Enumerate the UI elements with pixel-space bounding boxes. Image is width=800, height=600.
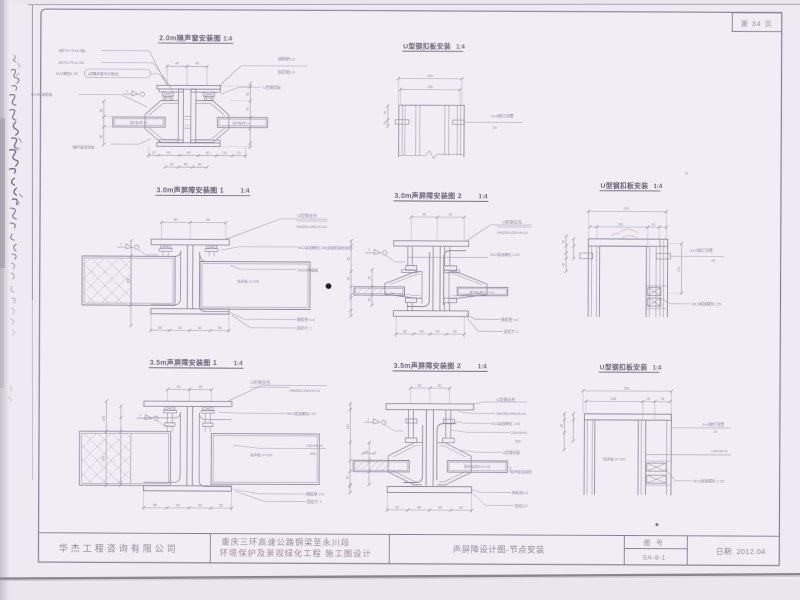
svg-text:M12高强螺栓 1:25: M12高强螺栓 1:25: [693, 478, 724, 483]
svg-text:1:4: 1:4: [478, 193, 488, 200]
svg-text:30: 30: [453, 330, 457, 334]
svg-text:橡胶垫 t=4: 橡胶垫 t=4: [306, 492, 324, 497]
svg-text:25: 25: [560, 424, 564, 428]
svg-text:150: 150: [102, 416, 106, 422]
svg-text:HW250×250×9×14: HW250×250×9×14: [497, 231, 527, 235]
svg-text:吸声板连接图: 吸声板连接图: [510, 469, 532, 474]
svg-text:40: 40: [368, 276, 372, 280]
svg-text:1: 1: [126, 89, 128, 93]
svg-text:HW250×250×9×14: HW250×250×9×14: [496, 412, 526, 416]
svg-text:4根75×75×6.5板: 4根75×75×6.5板: [58, 48, 85, 53]
svg-text:60: 60: [347, 257, 351, 261]
svg-text:500: 500: [515, 439, 521, 443]
svg-text:U型钢扣板安装: U型钢扣板安装: [403, 41, 451, 50]
svg-text:M12高强螺栓1:25: M12高强螺栓1:25: [691, 301, 721, 306]
svg-text:40: 40: [438, 506, 442, 510]
svg-text:40: 40: [448, 213, 452, 217]
svg-text:30: 30: [459, 506, 463, 510]
svg-text:40: 40: [346, 476, 350, 480]
svg-text:30: 30: [395, 505, 399, 509]
svg-text:橡胶垫 t=4: 橡胶垫 t=4: [297, 317, 315, 322]
svg-text:24: 24: [651, 223, 655, 227]
svg-text:U型钢扣板安装: U型钢扣板安装: [600, 362, 648, 371]
svg-text:40: 40: [167, 151, 171, 155]
svg-text:40: 40: [347, 277, 351, 281]
svg-text:隔声窗连接板: 隔声窗连接板: [73, 144, 95, 149]
svg-text:声屏障设计图-节点安装: 声屏障设计图-节点安装: [453, 544, 545, 554]
svg-text:30: 30: [223, 151, 227, 155]
svg-text:吸声板 b=100: 吸声板 b=100: [603, 456, 625, 461]
svg-text:10: 10: [152, 151, 156, 155]
svg-text:4M75×75×6.5M: 4M75×75×6.5M: [58, 61, 84, 65]
svg-text:日期: 2012.04: 日期: 2012.04: [716, 547, 766, 556]
svg-text:橡胶垫t=4: 橡胶垫t=4: [512, 490, 528, 495]
svg-text:40: 40: [438, 384, 442, 388]
svg-text:500: 500: [310, 452, 316, 456]
svg-text:40: 40: [176, 503, 180, 507]
svg-text:20: 20: [713, 430, 717, 434]
svg-text:(或隔声窗半分固定): (或隔声窗半分固定): [88, 71, 119, 76]
svg-text:136: 136: [427, 85, 433, 89]
svg-text:30: 30: [403, 329, 407, 333]
svg-text:HW250×250×9×14: HW250×250×9×14: [290, 389, 320, 393]
svg-text:20: 20: [647, 397, 651, 401]
svg-text:M12高强螺栓1:25: M12高强螺栓1:25: [287, 411, 315, 416]
svg-text:40: 40: [175, 62, 179, 66]
svg-text:115: 115: [346, 424, 350, 429]
svg-text:40: 40: [184, 163, 188, 167]
svg-text:190: 190: [624, 386, 630, 390]
svg-text:40: 40: [195, 62, 199, 66]
svg-text:图 号: 图 号: [644, 539, 665, 547]
svg-text:1: 1: [368, 248, 370, 252]
svg-text:3.5m声屏障安装图 1: 3.5m声屏障安装图 1: [150, 358, 217, 367]
svg-text:50: 50: [173, 218, 177, 222]
svg-text:30: 30: [170, 162, 174, 166]
svg-text:500: 500: [127, 278, 131, 284]
svg-text:M12高强螺栓1:25(或植筋锚栓固定): M12高强螺栓1:25(或植筋锚栓固定): [298, 245, 352, 250]
svg-text:固定窗1:4: 固定窗1:4: [278, 69, 295, 74]
svg-text:40: 40: [198, 503, 202, 507]
svg-text:55: 55: [218, 326, 222, 330]
svg-text:1:4: 1:4: [478, 363, 488, 370]
svg-text:1: 1: [120, 242, 122, 246]
svg-text:136: 136: [611, 397, 617, 401]
svg-text:40: 40: [177, 385, 181, 389]
svg-text:170: 170: [677, 266, 681, 272]
svg-text:第 34 页: 第 34 页: [741, 19, 773, 28]
svg-text:L50×50×5: L50×50×5: [306, 444, 322, 448]
svg-text:橡胶垫 t=4: 橡胶垫 t=4: [501, 317, 519, 322]
svg-text:固定片 2: 固定片 2: [307, 499, 322, 504]
svg-text:40: 40: [199, 385, 203, 389]
svg-text:50: 50: [206, 218, 210, 222]
svg-text:横隔壁1:4: 横隔壁1:4: [278, 56, 295, 61]
svg-text:3×4钢钉顶置: 3×4钢钉顶置: [702, 422, 724, 427]
svg-text:45: 45: [246, 107, 250, 111]
svg-text:20/2/2伸缩缝: 20/2/2伸缩缝: [297, 267, 318, 272]
svg-text:20: 20: [711, 259, 715, 263]
svg-text:1:4: 1:4: [653, 366, 662, 372]
svg-text:40: 40: [206, 151, 210, 155]
svg-text:重庆三环高速公路铜梁至永川段: 重庆三环高速公路铜梁至永川段: [221, 537, 350, 548]
svg-text:30: 30: [198, 163, 202, 167]
svg-text:20: 20: [493, 126, 497, 130]
svg-text:40: 40: [187, 151, 191, 155]
svg-text:3×4钢钉顶置: 3×4钢钉顶置: [491, 113, 514, 119]
svg-text:55: 55: [158, 326, 162, 330]
svg-text:1:4: 1:4: [456, 45, 465, 51]
svg-text:U型钢扣板安装: U型钢扣板安装: [600, 181, 648, 190]
svg-text:M12高强螺栓 1:25: M12高强螺栓 1:25: [490, 252, 519, 257]
svg-text:50×50钢垫板: 50×50钢垫板: [31, 92, 53, 97]
svg-text:环境保护及景观绿化工程 施工图设计: 环境保护及景观绿化工程 施工图设计: [220, 547, 372, 558]
svg-text:40: 40: [418, 383, 422, 387]
svg-text:吸声板 b=100: 吸声板 b=100: [237, 279, 259, 284]
svg-text:吸声板(厚 ××): 吸声板(厚 ××): [130, 120, 148, 125]
svg-text:3×4钢钉顶置: 3×4钢钉顶置: [690, 247, 713, 253]
svg-text:吸声板 b=100: 吸声板 b=100: [250, 452, 272, 457]
svg-text:M12螺栓1:25: M12螺栓1:25: [56, 71, 78, 76]
svg-text:55: 55: [219, 504, 223, 508]
svg-text:固定片2: 固定片2: [515, 503, 528, 508]
svg-text:吸声板(厚80 b=10): 吸声板(厚80 b=10): [470, 289, 495, 294]
svg-text:270: 270: [624, 207, 630, 211]
svg-text:136: 136: [617, 222, 623, 226]
svg-text:1: 1: [139, 413, 141, 417]
svg-text:25: 25: [562, 240, 566, 244]
svg-text:3.0m声屏障安装图 1: 3.0m声屏障安装图 1: [156, 185, 223, 194]
svg-text:40: 40: [178, 326, 182, 330]
svg-text:U型钢支柱: U型钢支柱: [496, 396, 515, 402]
svg-text:1:4: 1:4: [234, 360, 244, 367]
svg-text:2.0m隔声窗安装图: 2.0m隔声窗安装图: [159, 33, 221, 42]
svg-text:40: 40: [198, 326, 202, 330]
svg-text:20: 20: [367, 298, 371, 302]
svg-text:U型钢扣板: U型钢扣板: [502, 450, 520, 455]
svg-text:L50×50×5: L50×50×5: [711, 449, 727, 453]
svg-text:1:4: 1:4: [653, 184, 662, 190]
svg-text:10: 10: [237, 151, 241, 155]
svg-text:45: 45: [562, 263, 566, 267]
svg-text:1:4: 1:4: [223, 36, 233, 43]
svg-text:1:4: 1:4: [240, 188, 250, 195]
svg-text:20: 20: [383, 121, 387, 125]
svg-text:350: 350: [102, 456, 106, 462]
svg-text:80: 80: [99, 109, 103, 113]
svg-text:吸声板(厚80 b=10): 吸声板(厚80 b=10): [464, 464, 491, 469]
svg-text:70: 70: [383, 111, 387, 115]
svg-text:40: 40: [420, 329, 424, 333]
svg-text:SA-8-1: SA-8-1: [643, 555, 666, 562]
svg-text:55: 55: [153, 503, 157, 507]
svg-text:HW250×250×9×14: HW250×250×9×14: [296, 225, 326, 229]
svg-text:24: 24: [661, 397, 665, 401]
svg-text:吸声板(厚 ××): 吸声板(厚 ××): [233, 120, 251, 125]
svg-text:40: 40: [246, 92, 250, 96]
svg-text:40: 40: [436, 330, 440, 334]
svg-text:华杰工程咨询有限公司: 华杰工程咨询有限公司: [59, 542, 179, 554]
svg-text:固定片 2: 固定片 2: [297, 325, 312, 330]
svg-text:1: 1: [367, 417, 369, 421]
svg-text:U型钢扣板: U型钢扣板: [263, 85, 281, 90]
svg-text:40: 40: [422, 212, 426, 216]
svg-text:C50×50×5: C50×50×5: [510, 431, 526, 435]
svg-text:3.5m声屏障安装图 2: 3.5m声屏障安装图 2: [394, 361, 461, 370]
svg-text:80: 80: [99, 135, 103, 139]
svg-text:40: 40: [417, 505, 421, 509]
svg-text:M12高强螺栓 1:40: M12高强螺栓 1:40: [491, 421, 520, 426]
svg-text:150: 150: [427, 74, 433, 78]
svg-text:3.0m声屏障安装图 2: 3.0m声屏障安装图 2: [394, 191, 461, 200]
svg-text:固定片 2: 固定片 2: [504, 329, 519, 334]
